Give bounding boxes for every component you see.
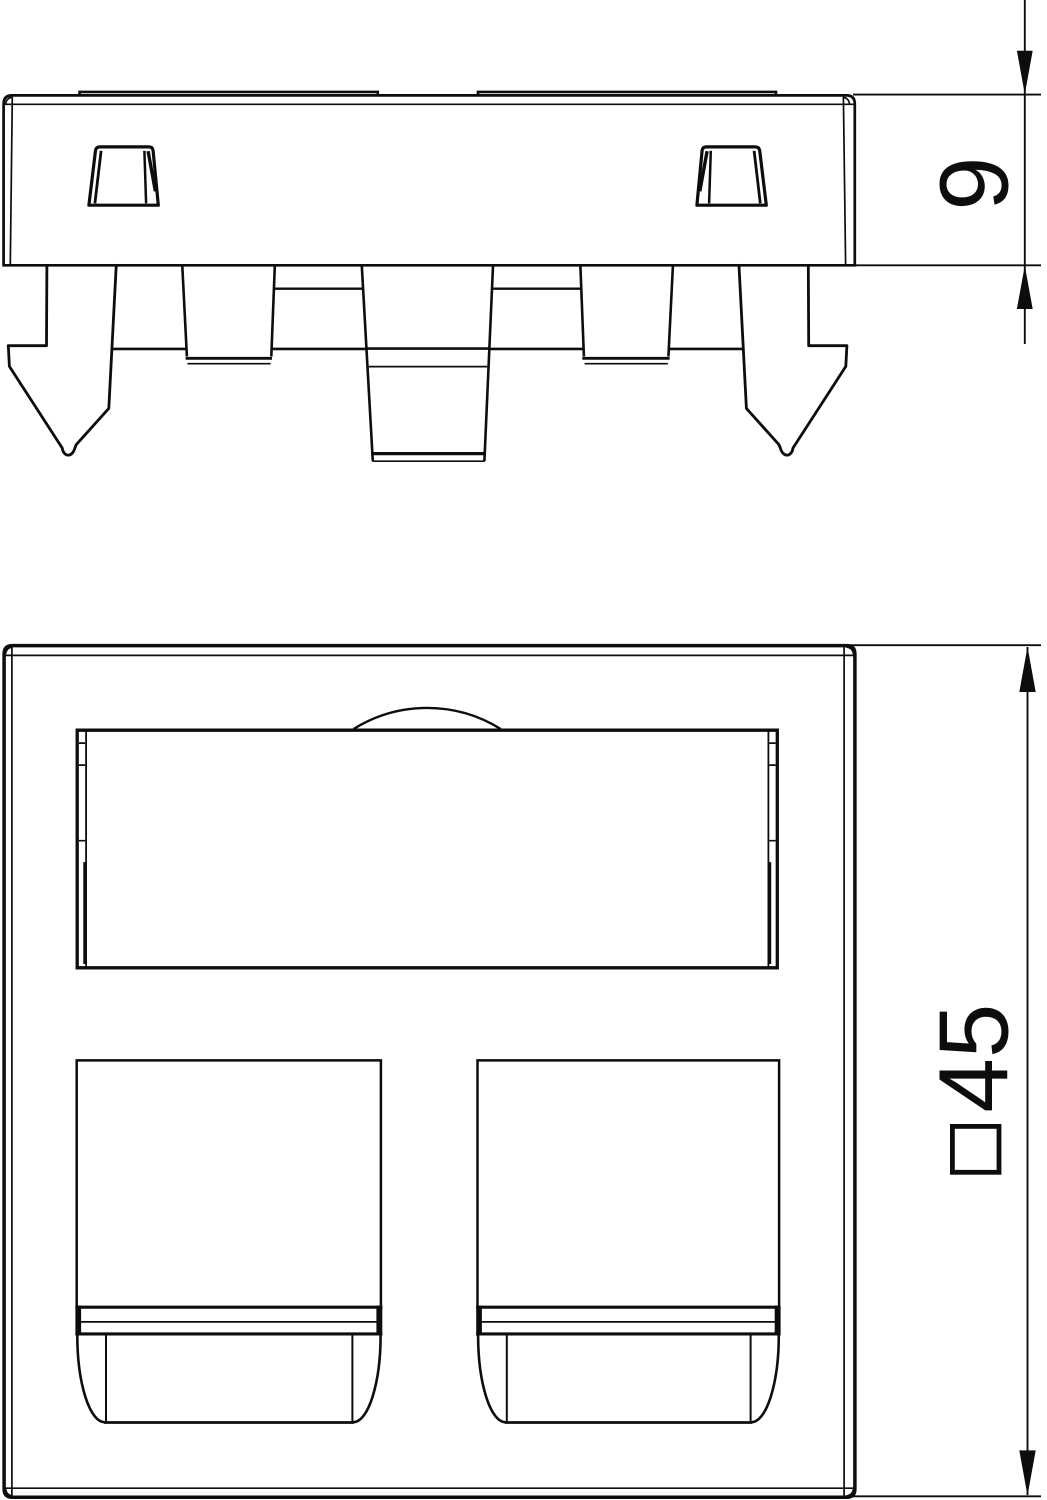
svg-text:45: 45 [919, 1004, 1029, 1113]
svg-text:9: 9 [919, 157, 1028, 211]
